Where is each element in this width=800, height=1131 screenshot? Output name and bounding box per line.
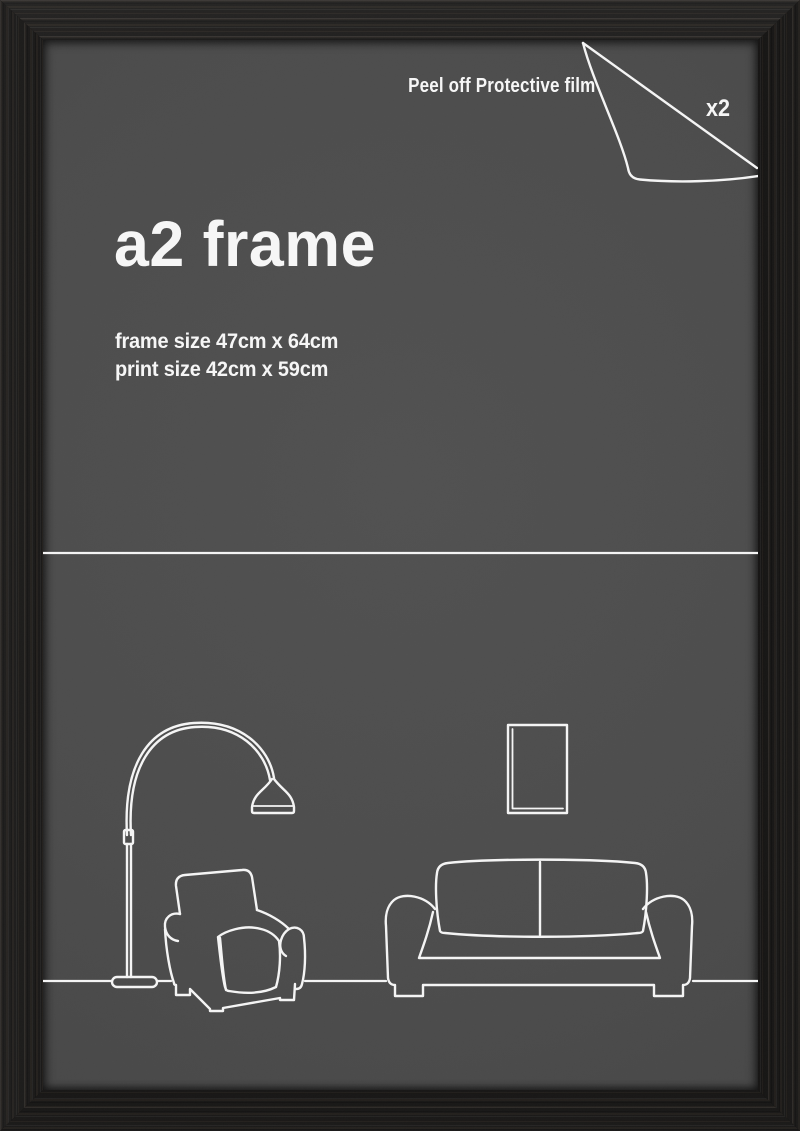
peel-instruction-text: Peel off Protective film [408, 75, 595, 98]
protective-film-corner-icon [583, 43, 758, 181]
framed-product-photo: Peel off Protective film x2 a2 frame fra… [0, 0, 800, 1131]
quantity-text: x2 [706, 95, 730, 123]
arc-floor-lamp-icon [112, 723, 294, 987]
insert-line-art [43, 40, 758, 1090]
product-title: a2 frame [114, 212, 376, 276]
frame-insert: Peel off Protective film x2 a2 frame fra… [43, 40, 758, 1090]
wall-picture-frame-icon [508, 725, 567, 813]
size-specs: frame size 47cm x 64cm print size 42cm x… [115, 328, 338, 384]
frame-size-text: frame size 47cm x 64cm [115, 328, 338, 356]
sofa-icon [386, 860, 692, 996]
print-size-text: print size 42cm x 59cm [115, 356, 338, 384]
armchair-icon [165, 870, 305, 1011]
